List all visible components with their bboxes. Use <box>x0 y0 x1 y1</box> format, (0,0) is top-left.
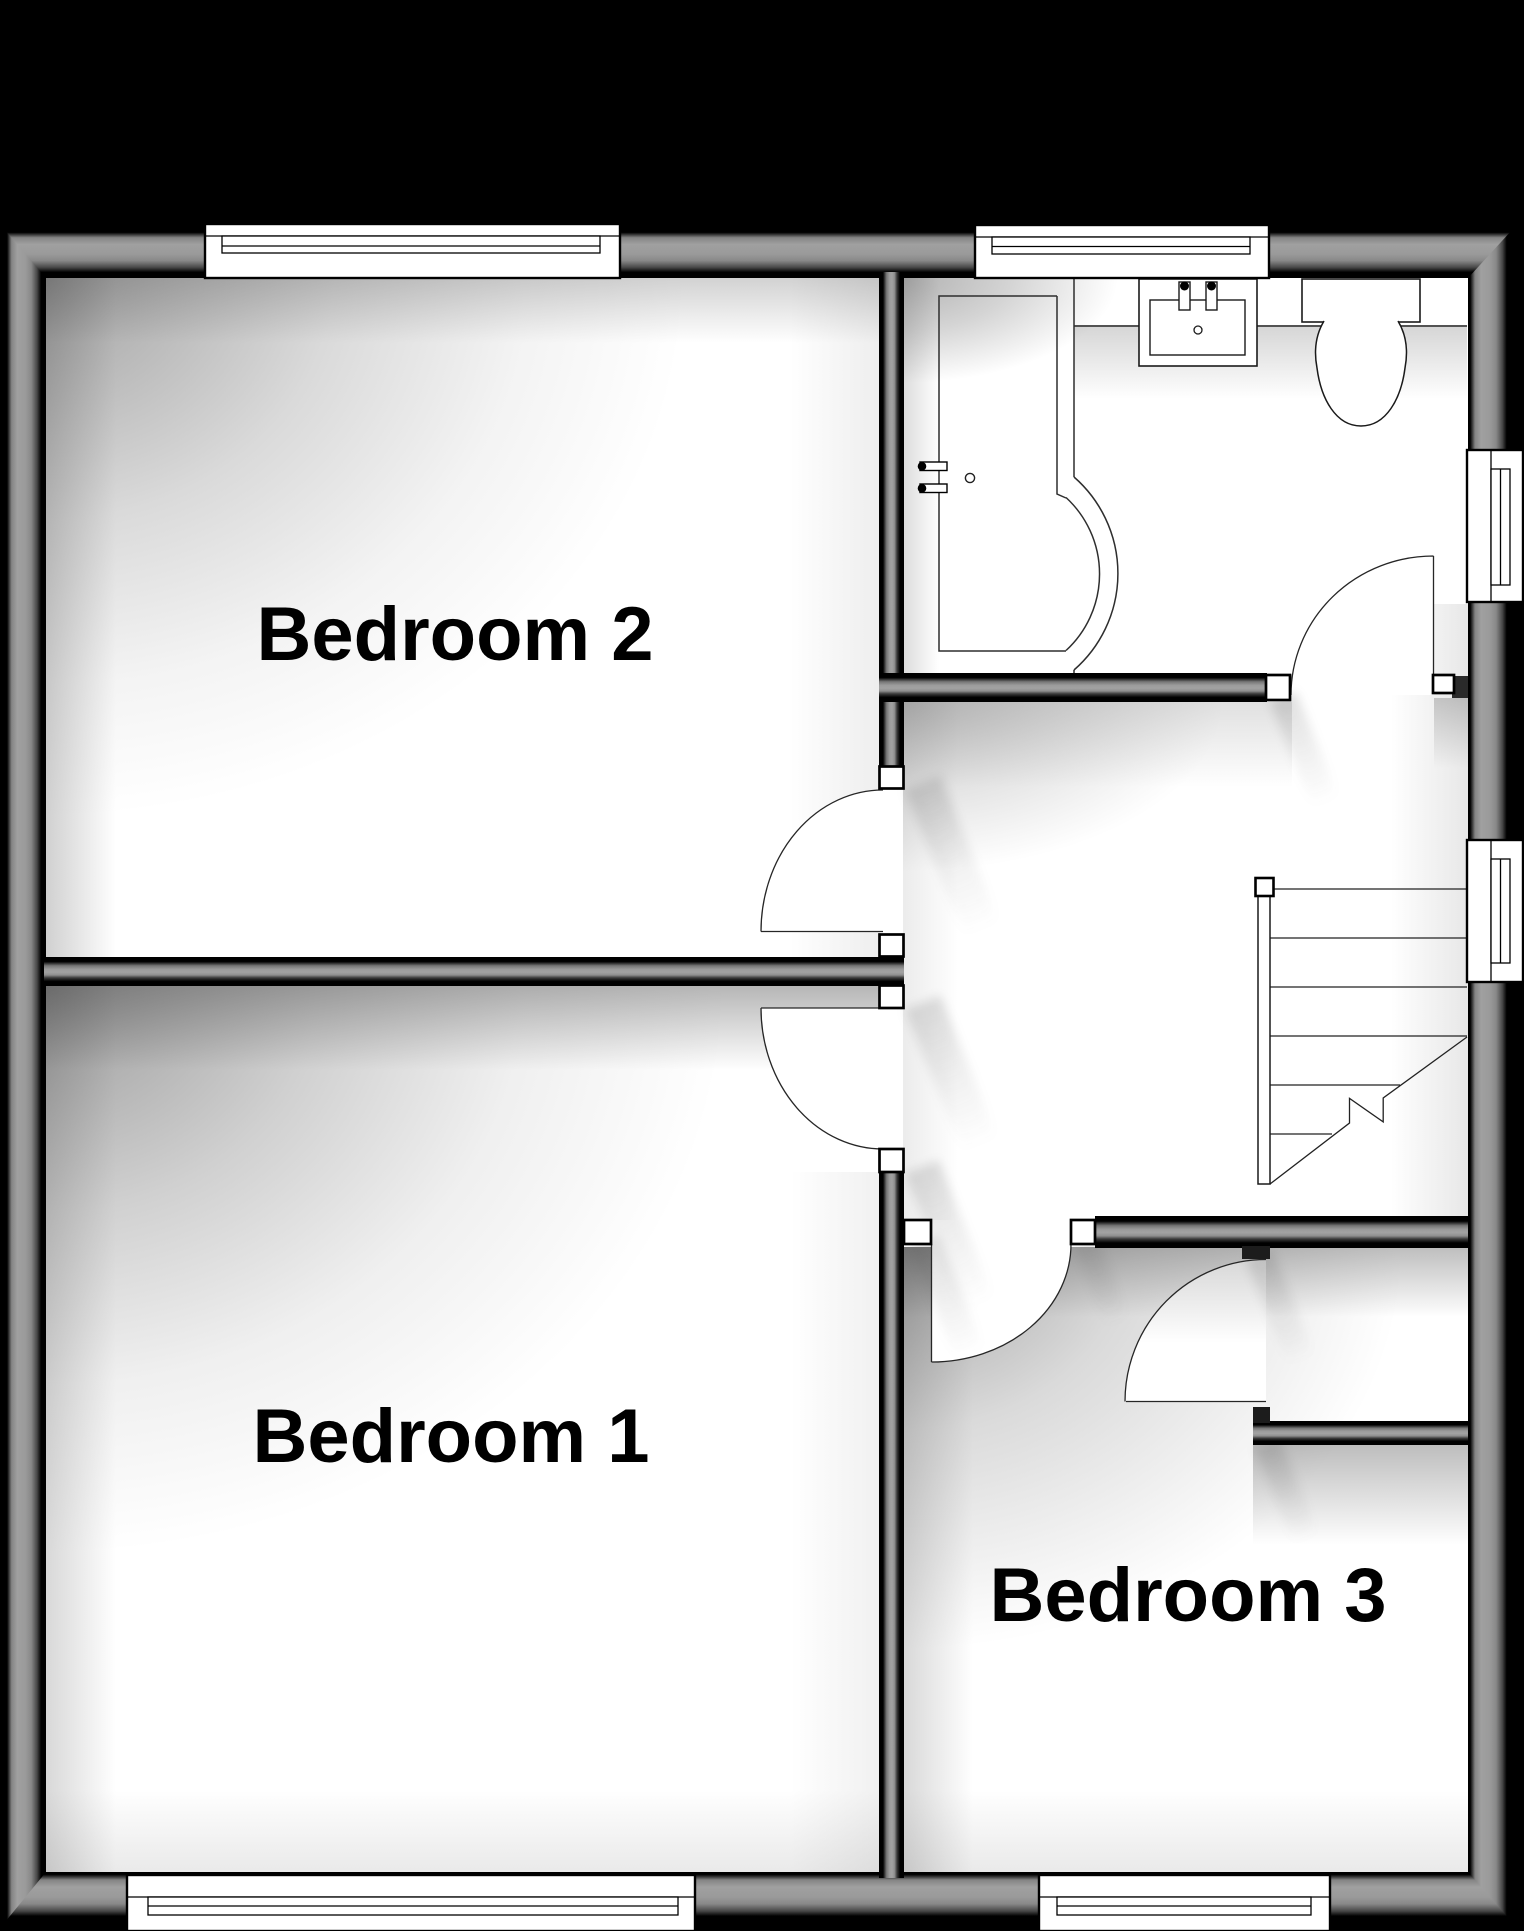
svg-text:Bedroom 2: Bedroom 2 <box>257 592 654 677</box>
svg-text:Bedroom 3: Bedroom 3 <box>990 1553 1387 1638</box>
svg-text:Bedroom 1: Bedroom 1 <box>253 1394 650 1479</box>
